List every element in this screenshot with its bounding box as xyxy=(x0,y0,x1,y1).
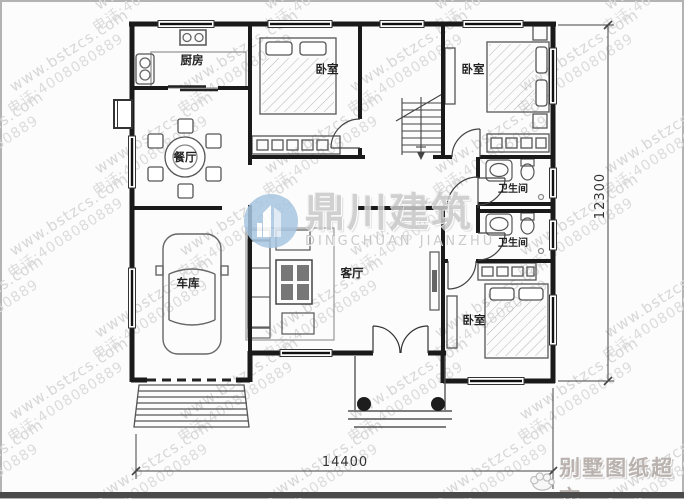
window-right-bedroom2 xyxy=(550,48,557,104)
entry-porch xyxy=(348,356,452,427)
stairs xyxy=(396,93,444,160)
window-top-kitchen xyxy=(158,21,214,28)
porch-column xyxy=(357,397,371,411)
porch-column xyxy=(431,397,445,411)
logo-en-text: DINGCHUAN JIANZHU xyxy=(305,234,495,249)
dining-label: 餐厅 xyxy=(173,150,197,164)
bedroom3-furniture xyxy=(447,263,548,358)
bath1-label: 卫生间 xyxy=(498,182,528,195)
window-top-bedroom1 xyxy=(268,21,332,28)
window-left-dining xyxy=(129,136,136,188)
bottom-bar xyxy=(0,492,684,498)
bedroom2-furniture xyxy=(445,26,549,152)
garage-ramp xyxy=(134,385,249,427)
window-right-bath1 xyxy=(550,168,557,198)
floorplan-image: www.bstzcs.com电话:4008080889www.bstzcs.co… xyxy=(0,0,684,499)
bedroom3-label: 卧室 xyxy=(463,313,486,327)
floor-plan: 14400 12300 厨房 餐厅 卧室 卧室 车库 客厅 卫生间 卫生间 卧室 xyxy=(0,0,684,499)
window-bottom-bedroom3 xyxy=(468,378,524,385)
garage-label: 车库 xyxy=(177,276,200,290)
stairs-arrow-icon xyxy=(417,152,425,160)
bedroom2-label: 卧室 xyxy=(462,62,485,76)
entry-double-door xyxy=(373,326,428,353)
bedroom3-door xyxy=(448,261,476,289)
bath2-label: 卫生间 xyxy=(498,236,528,249)
bedroom1-door xyxy=(331,119,360,148)
window-top-stairhall xyxy=(380,21,424,28)
window-top-bedroom2 xyxy=(463,21,523,28)
logo-building-icon xyxy=(243,193,299,249)
window-right-bedroom3 xyxy=(550,295,557,345)
dimension-width-label: 14400 xyxy=(322,455,368,470)
garage-car xyxy=(156,234,228,354)
window-bottom-living xyxy=(280,350,332,357)
bay-window xyxy=(114,100,132,128)
bedroom2-door xyxy=(452,129,480,157)
logo-cn-text: 鼎川建筑 xyxy=(305,193,495,233)
kitchen-label: 厨房 xyxy=(181,53,204,67)
dimension-height-label: 12300 xyxy=(593,173,608,219)
window-left-garage xyxy=(129,268,136,328)
bedroom1-furniture xyxy=(252,38,340,154)
bedroom1-label: 卧室 xyxy=(316,62,339,76)
living-label: 客厅 xyxy=(340,266,364,280)
dingchuan-logo: 鼎川建筑 DINGCHUAN JIANZHU xyxy=(243,193,495,249)
window-right-bath2 xyxy=(550,220,557,250)
